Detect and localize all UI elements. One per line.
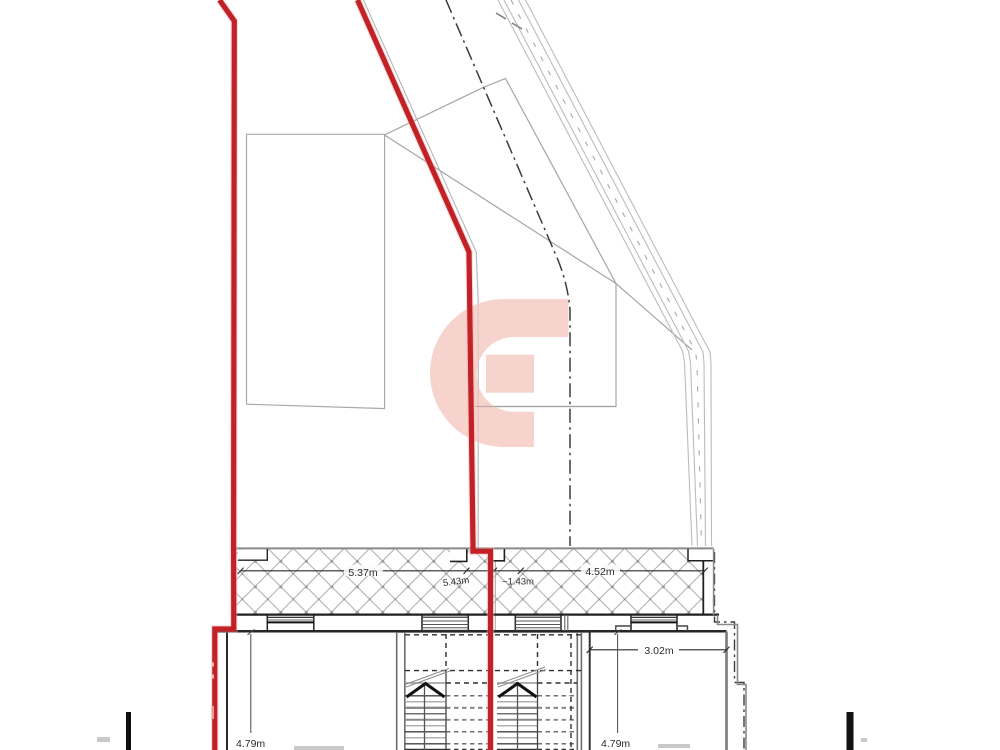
svg-text:4.79m: 4.79m (236, 738, 265, 750)
svg-text:3.02m: 3.02m (644, 645, 673, 657)
svg-text:4.79m: 4.79m (601, 738, 630, 750)
svg-text:5.37m: 5.37m (348, 567, 377, 579)
svg-text:4.52m: 4.52m (585, 566, 614, 578)
svg-text:~1.43m: ~1.43m (502, 577, 534, 588)
